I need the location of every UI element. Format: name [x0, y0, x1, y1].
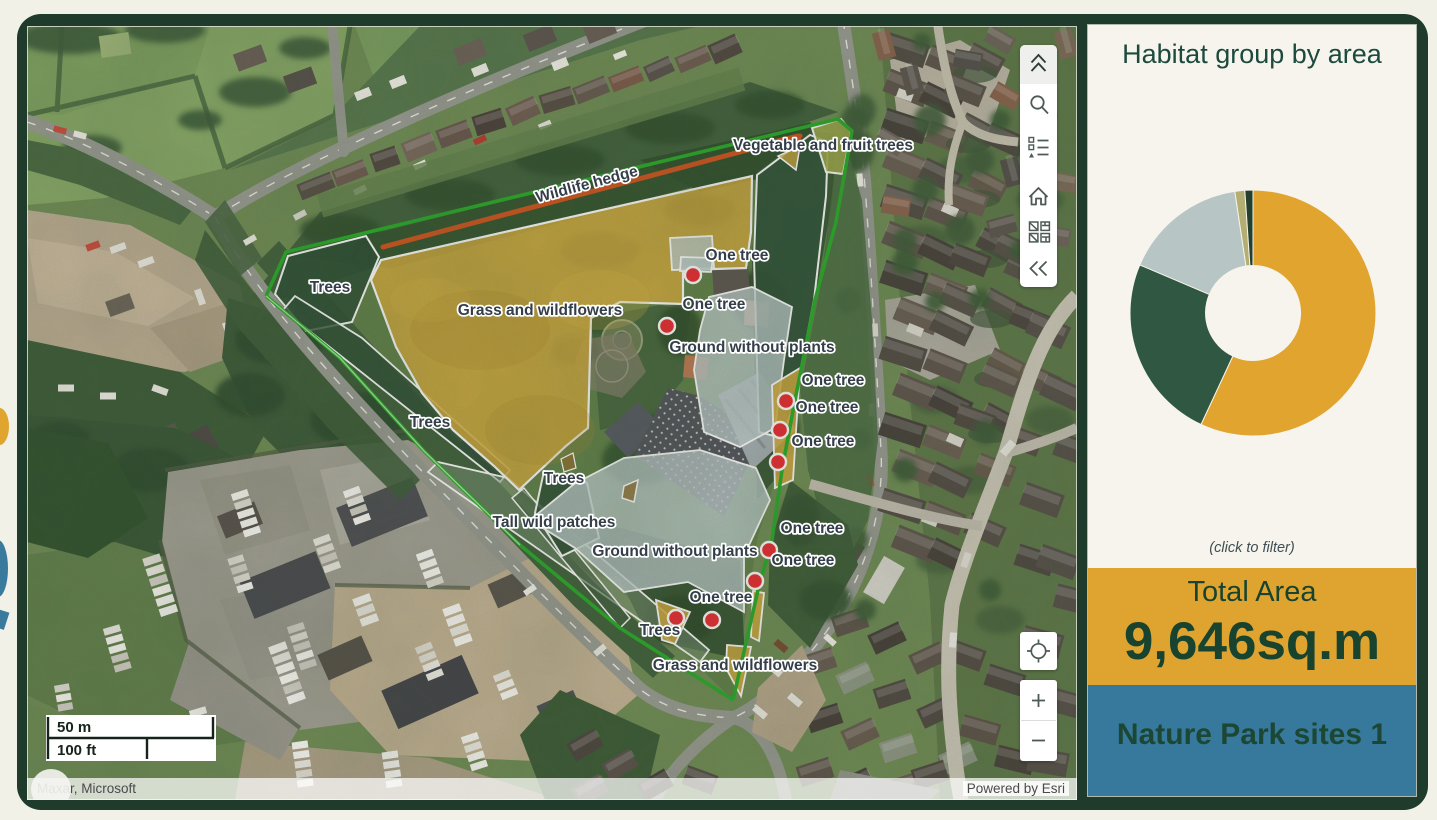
svg-text:Trees: Trees	[544, 470, 585, 487]
svg-text:One tree: One tree	[802, 372, 865, 389]
svg-text:Ground without plants: Ground without plants	[669, 339, 834, 356]
svg-text:100 ft: 100 ft	[57, 742, 96, 759]
svg-text:One tree: One tree	[706, 247, 769, 264]
svg-text:Trees: Trees	[310, 279, 351, 296]
svg-text:One tree: One tree	[796, 399, 859, 416]
svg-text:One tree: One tree	[683, 296, 746, 313]
svg-text:Tall wild patches: Tall wild patches	[493, 514, 616, 531]
svg-text:One tree: One tree	[781, 520, 844, 537]
svg-text:One tree: One tree	[772, 552, 835, 569]
svg-text:Trees: Trees	[410, 414, 451, 431]
svg-text:Ground without plants: Ground without plants	[592, 543, 757, 560]
svg-text:One tree: One tree	[792, 433, 855, 450]
svg-text:Trees: Trees	[640, 622, 681, 639]
svg-text:Grass and wildflowers: Grass and wildflowers	[653, 657, 818, 674]
svg-text:Grass and wildflowers: Grass and wildflowers	[458, 302, 623, 319]
svg-text:Vegetable and fruit trees: Vegetable and fruit trees	[733, 137, 913, 154]
svg-text:50 m: 50 m	[57, 719, 91, 736]
svg-text:One tree: One tree	[690, 589, 753, 606]
